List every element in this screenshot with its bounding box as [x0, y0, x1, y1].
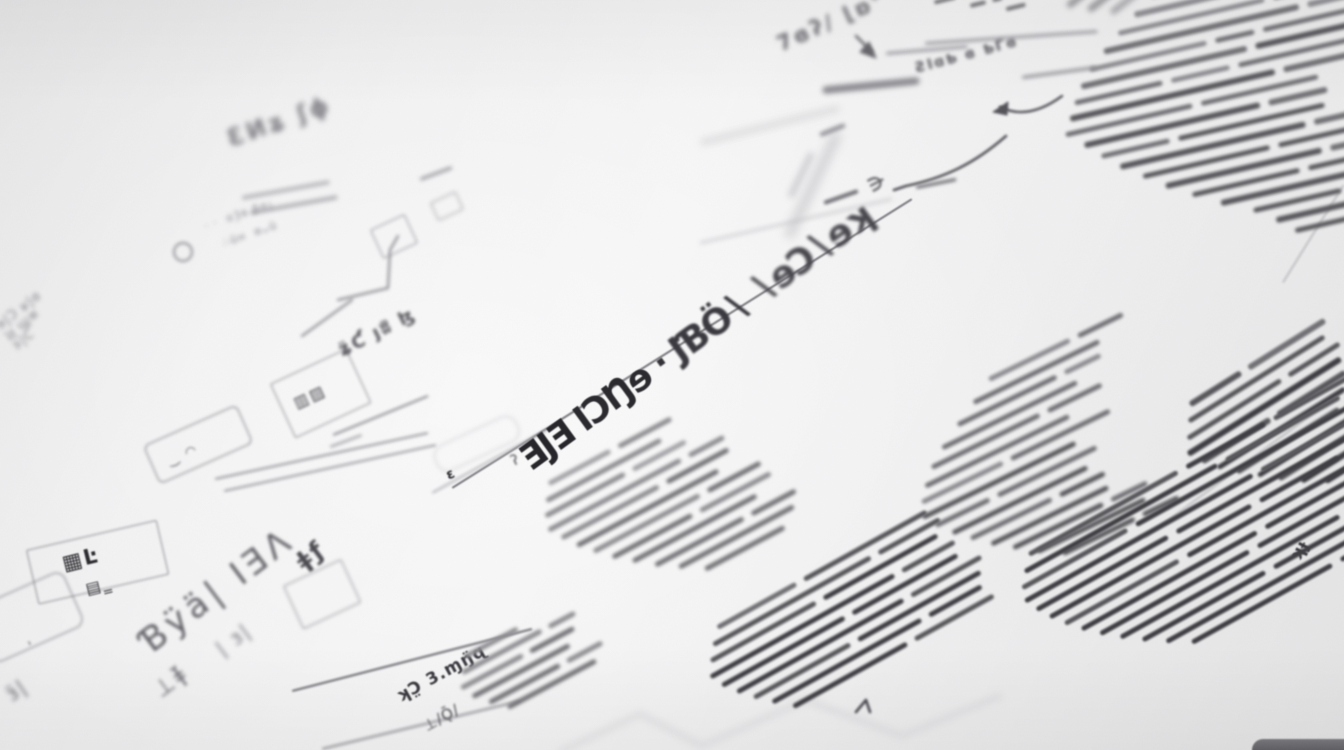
pseudo-text-segment: [1215, 29, 1255, 43]
arrow-down-right-stem: [856, 36, 872, 52]
pseudo-text-segment: [934, 0, 956, 4]
pseudo-text-segment: [1006, 3, 1026, 12]
corner-glyphs-bottom-left: ɜ̈|: [2, 676, 31, 705]
text-block-top-right: [1022, 0, 1344, 291]
label-76-lo: 7ɞʔ/ ⌊ɒ°: [774, 0, 889, 55]
flow-box-3-partial: [283, 559, 361, 630]
ring-top-left: [174, 243, 192, 261]
pseudo-text-line: [753, 554, 1011, 700]
pseudo-text-line: [721, 531, 998, 688]
bracket-small-box-1: [430, 191, 464, 221]
pseudo-text-segment: [547, 457, 682, 532]
pseudo-text-segment: [1081, 530, 1258, 631]
fork-glyph: Ψ: [865, 171, 890, 194]
left-edge-text-block: ɘ|Ɔ ʁ|ɞ ʇɟ ɰ≡ ϶|Ƈ: [0, 289, 60, 353]
text-block-bottom-left-strip: [446, 579, 642, 732]
curved-arrow-top-head: [993, 102, 1008, 115]
pale-band-top: [699, 105, 840, 146]
label-bottom-center-2: ⊥/Ǭ/: [421, 702, 462, 734]
pseudo-text-line: [941, 335, 1170, 450]
pseudo-text-segment: [803, 510, 928, 582]
flow-line-2: [224, 444, 436, 492]
long-sweep-curve: [894, 136, 1006, 190]
underline-box2-b: [330, 434, 363, 448]
pseudo-text-line: [736, 543, 1004, 695]
pipe-glyphs-mid: | ɜ|: [212, 620, 255, 659]
photo-of-schematic-document: ƐИʑ ʃɸ· · ɑȜʙ βɞ¡∴üʜ ɞᴗü7ɞʔ/ ⌊ɒ°ƧIɑƄ ɞ Ƅ…: [0, 0, 1344, 750]
pseudo-text-line: [507, 637, 638, 710]
pseudo-text-segment: [593, 493, 701, 554]
title-fragment-top-left: ƐИʑ ʃɸ: [224, 93, 335, 151]
pseudo-text-line: [611, 453, 804, 559]
pseudo-text-segment: [1330, 136, 1344, 150]
small-glyphs-under-letters: ⊥ǂ̈: [150, 662, 193, 702]
dash-on-rule-right: [916, 178, 956, 188]
focal-text-word: IƆŊɘ: [566, 356, 660, 440]
focal-text-word: ∖ɘƆ∖ɘʞ: [742, 196, 879, 311]
pseudo-text-segment: [1307, 0, 1344, 7]
pseudo-text-segment: [1314, 108, 1344, 125]
glyphs-above-box2: ʑ̈Ƈ ȷʬ̈ ɮ: [336, 306, 419, 360]
pseudo-text-segment: [941, 380, 1078, 450]
check-mark-bottom: [856, 700, 870, 712]
pseudo-text-segment: [1141, 570, 1266, 642]
bracket-small-box-2: [370, 214, 418, 259]
focal-text-word: JƁÖ∖: [661, 284, 758, 370]
pseudo-text-line: [1192, 112, 1344, 197]
bracket-stub: [419, 166, 452, 181]
pseudo-text-segment: [1192, 167, 1300, 197]
pseudo-text-segment: [992, 0, 1003, 2]
title-bar-1: [242, 180, 331, 200]
corner-object: [1252, 739, 1344, 750]
arrow-down-right-head: [860, 42, 876, 58]
pseudo-text-line: [1165, 98, 1344, 189]
box4-inner-marks-2: ▤‗: [84, 575, 114, 597]
pseudo-text-segment: [970, 0, 986, 8]
pseudo-text-line: [576, 430, 792, 548]
thick-bar-under-arrow: [826, 81, 916, 90]
